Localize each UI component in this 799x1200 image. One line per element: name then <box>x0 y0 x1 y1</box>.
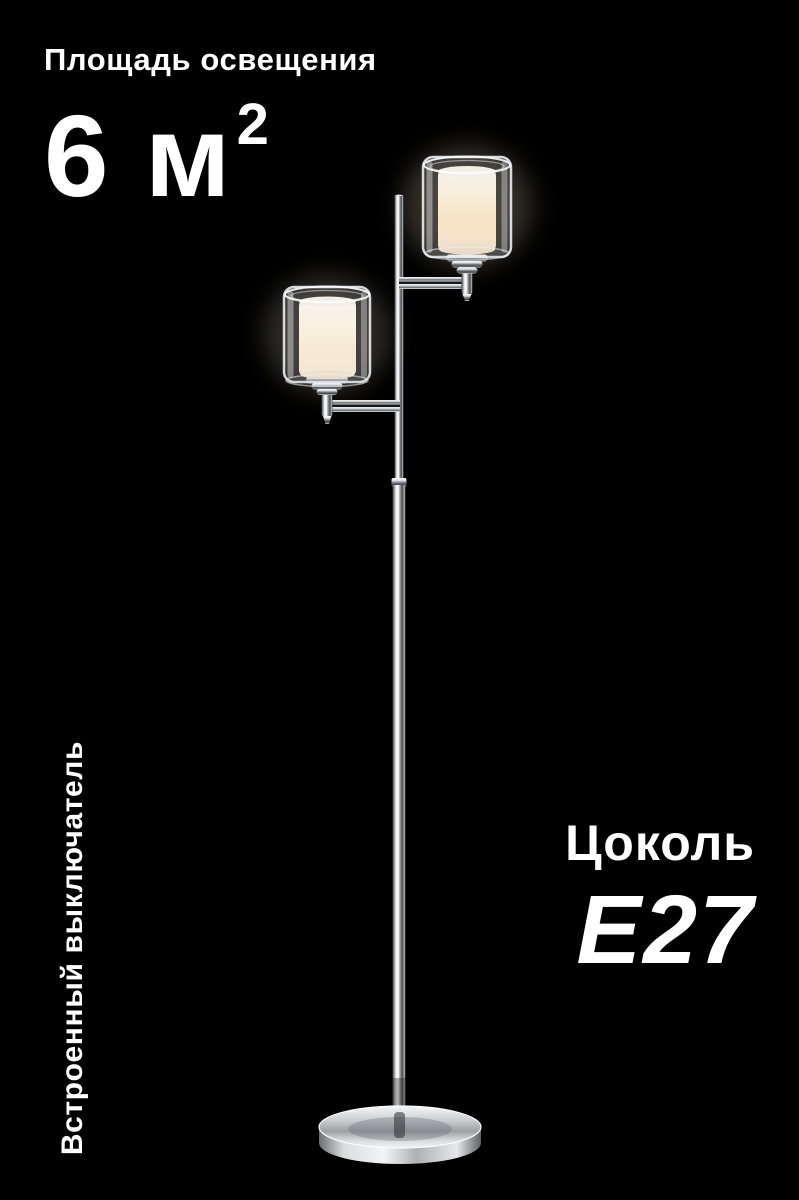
lighting-area-label: Площадь освещения <box>44 42 377 78</box>
lighting-area-number: 6 м <box>44 91 233 221</box>
lighting-area-value: 6 м2 <box>44 98 271 214</box>
lower-lamp-arm <box>328 400 400 412</box>
socket-value: E27 <box>565 884 755 976</box>
lighting-area-superscript: 2 <box>237 96 271 154</box>
built-in-switch-label: Встроенный выключатель <box>56 741 90 1155</box>
lamp-base <box>319 1106 481 1164</box>
upper-lamp-arm <box>399 277 470 289</box>
socket-label: Цоколь <box>565 816 755 870</box>
socket-block: Цоколь E27 <box>565 816 755 976</box>
product-card: Площадь освещения 6 м2 Цоколь E27 Встрое… <box>0 0 799 1200</box>
lamp-pole <box>392 195 407 1126</box>
